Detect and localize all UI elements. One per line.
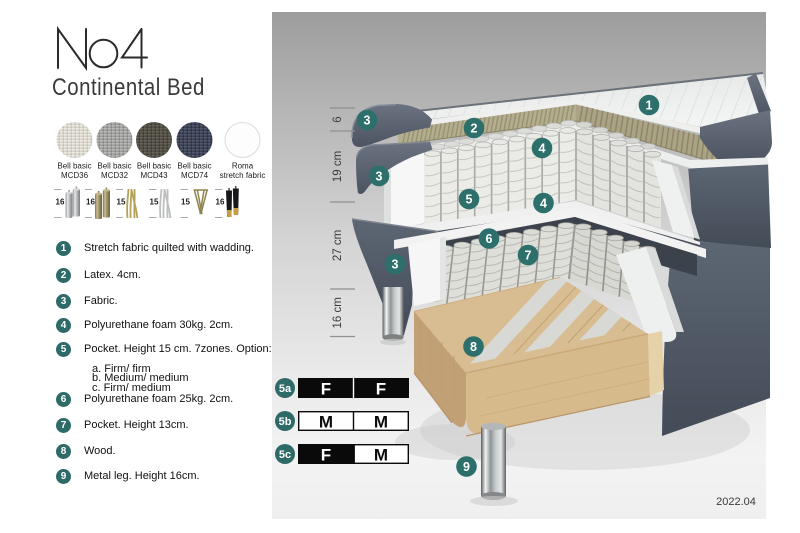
svg-text:2022.04: 2022.04 [716,496,756,508]
svg-text:27 cm: 27 cm [332,230,344,261]
svg-text:3: 3 [364,113,371,127]
svg-text:F: F [321,446,331,465]
svg-text:5: 5 [466,192,473,206]
svg-text:7: 7 [525,248,532,262]
svg-text:M: M [319,413,333,432]
svg-text:5a: 5a [279,383,292,395]
svg-text:16 cm: 16 cm [332,297,344,328]
svg-text:6: 6 [486,232,493,246]
svg-text:F: F [376,380,386,399]
svg-text:8: 8 [470,340,477,354]
svg-text:5c: 5c [279,449,291,461]
svg-text:M: M [374,446,388,465]
svg-text:9: 9 [463,460,470,474]
svg-text:F: F [321,380,331,399]
svg-text:6: 6 [332,116,344,122]
svg-text:19 cm: 19 cm [332,151,344,182]
svg-text:3: 3 [392,257,399,271]
svg-text:4: 4 [540,196,547,210]
svg-text:3: 3 [376,169,383,183]
svg-text:M: M [374,413,388,432]
svg-text:1: 1 [646,98,653,112]
svg-text:2: 2 [471,121,478,135]
svg-text:4: 4 [539,141,546,155]
svg-text:5b: 5b [279,416,292,428]
